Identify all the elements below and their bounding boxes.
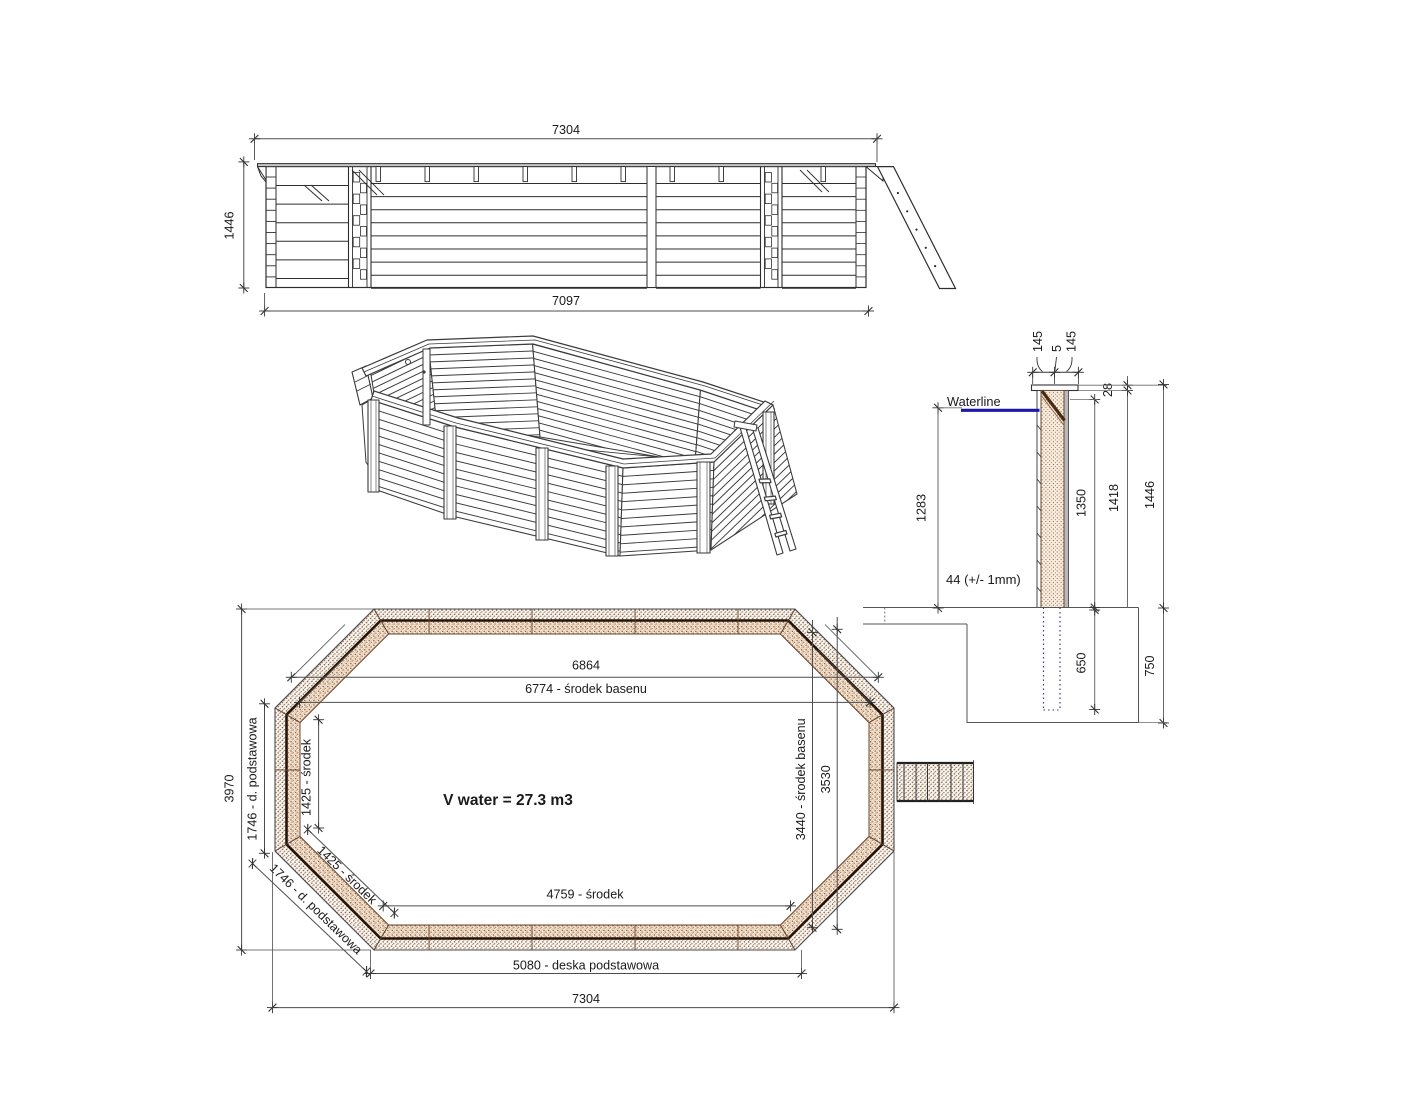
svg-text:1446: 1446 [1143, 481, 1157, 509]
svg-text:1283: 1283 [915, 494, 929, 522]
svg-text:V water = 27.3 m3: V water = 27.3 m3 [443, 792, 573, 809]
svg-text:5: 5 [1050, 345, 1064, 352]
svg-text:1418: 1418 [1107, 484, 1121, 512]
svg-text:1350: 1350 [1075, 489, 1089, 517]
svg-text:6864: 6864 [572, 659, 600, 673]
svg-text:750: 750 [1143, 655, 1157, 676]
svg-text:7304: 7304 [572, 992, 600, 1006]
svg-text:145: 145 [1065, 331, 1079, 352]
svg-text:44 (+/- 1mm): 44 (+/- 1mm) [946, 572, 1021, 587]
svg-text:Waterline: Waterline [947, 394, 1001, 409]
svg-text:3530: 3530 [819, 765, 833, 793]
svg-text:1425 - środek: 1425 - środek [300, 738, 314, 816]
svg-text:6774 - środek basenu: 6774 - środek basenu [525, 682, 647, 696]
svg-text:3440 - środek basenu: 3440 - środek basenu [794, 718, 808, 840]
svg-text:4759 - środek: 4759 - środek [546, 888, 624, 902]
svg-text:1746 - d. podstawowa: 1746 - d. podstawowa [246, 717, 260, 840]
svg-text:7304: 7304 [552, 123, 580, 137]
svg-text:145: 145 [1031, 331, 1045, 352]
svg-text:7097: 7097 [552, 294, 580, 308]
svg-text:650: 650 [1075, 652, 1089, 673]
svg-text:5080 - deska podstawowa: 5080 - deska podstawowa [513, 959, 659, 973]
svg-text:3970: 3970 [223, 774, 237, 802]
svg-text:1446: 1446 [223, 211, 237, 239]
